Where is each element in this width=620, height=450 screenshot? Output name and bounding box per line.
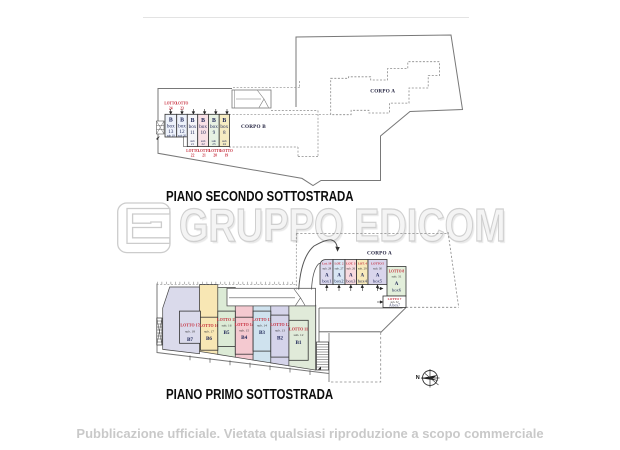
svg-text:21: 21 xyxy=(191,142,195,146)
svg-text:sub. 26: sub. 26 xyxy=(346,267,355,271)
svg-text:20: 20 xyxy=(213,153,217,157)
svg-text:LOTTO 11: LOTTO 11 xyxy=(289,327,308,332)
svg-text:LOTTO 16: LOTTO 16 xyxy=(199,323,218,328)
svg-text:sub. 14: sub. 14 xyxy=(257,323,267,327)
svg-text:sub. 13: sub. 13 xyxy=(275,328,285,332)
svg-text:LOTTO 5: LOTTO 5 xyxy=(371,262,384,266)
svg-text:B2: B2 xyxy=(277,336,283,342)
svg-text:A box7: A box7 xyxy=(389,304,400,308)
svg-text:11: 11 xyxy=(190,130,195,136)
svg-text:22: 22 xyxy=(191,153,195,157)
svg-text:sub. 31: sub. 31 xyxy=(392,275,402,279)
svg-text:LOTTO 14: LOTTO 14 xyxy=(235,322,254,327)
svg-text:LOT. 2: LOT. 2 xyxy=(334,262,344,266)
svg-text:CORPO B: CORPO B xyxy=(241,124,266,130)
svg-text:24: 24 xyxy=(169,106,173,110)
svg-text:B1: B1 xyxy=(295,340,301,346)
svg-text:9: 9 xyxy=(213,130,216,136)
svg-text:sub. 12: sub. 12 xyxy=(294,333,304,337)
svg-text:B3: B3 xyxy=(259,330,265,336)
svg-text:10: 10 xyxy=(201,130,207,136)
svg-text:sub. 30: sub. 30 xyxy=(373,267,382,271)
svg-text:Lot. 19: Lot. 19 xyxy=(322,262,332,266)
svg-text:LOTTO: LOTTO xyxy=(176,102,189,106)
svg-text:23: 23 xyxy=(212,142,216,146)
svg-text:B7: B7 xyxy=(187,337,193,343)
svg-text:LOTTO 17: LOTTO 17 xyxy=(180,323,199,328)
svg-text:B5: B5 xyxy=(223,330,229,336)
svg-text:B6: B6 xyxy=(206,336,212,342)
svg-text:sub. 16: sub. 16 xyxy=(222,323,232,327)
svg-text:sub 19: sub 19 xyxy=(167,133,175,137)
svg-text:sub. 17: sub. 17 xyxy=(204,329,214,333)
svg-text:box2: box2 xyxy=(334,279,344,284)
svg-text:box6: box6 xyxy=(392,288,402,293)
svg-text:22: 22 xyxy=(202,142,206,146)
svg-text:LOT. 4: LOT. 4 xyxy=(358,262,368,266)
svg-text:LOTTO 13: LOTTO 13 xyxy=(252,317,271,322)
svg-text:21: 21 xyxy=(202,153,206,157)
svg-text:23: 23 xyxy=(180,106,184,110)
svg-text:LOTTO: LOTTO xyxy=(220,149,233,153)
svg-text:LOT. 3: LOT. 3 xyxy=(346,262,356,266)
svg-text:sub. 28: sub. 28 xyxy=(322,267,331,271)
svg-text:LOTTO 15: LOTTO 15 xyxy=(217,317,236,322)
svg-text:8: 8 xyxy=(223,130,226,136)
svg-text:box5: box5 xyxy=(373,279,383,284)
svg-text:LOTTO 8: LOTTO 8 xyxy=(389,270,405,274)
svg-text:sub. 29: sub. 29 xyxy=(358,267,367,271)
svg-text:19: 19 xyxy=(225,153,229,157)
svg-text:box1: box1 xyxy=(322,279,332,284)
svg-text:sub. 18: sub. 18 xyxy=(185,330,195,334)
svg-text:box4: box4 xyxy=(358,279,368,284)
svg-text:sub. 27: sub. 27 xyxy=(335,267,344,271)
svg-text:LOTTO 12: LOTTO 12 xyxy=(270,322,289,327)
svg-text:24: 24 xyxy=(223,142,227,146)
svg-text:N: N xyxy=(416,375,420,381)
svg-text:A: A xyxy=(395,282,399,287)
svg-text:CORPO A: CORPO A xyxy=(367,251,392,257)
svg-text:CORPO A: CORPO A xyxy=(370,89,395,95)
svg-text:sub. 15: sub. 15 xyxy=(239,328,249,332)
svg-text:sub 20: sub 20 xyxy=(178,133,186,137)
svg-text:box3: box3 xyxy=(346,279,356,284)
svg-text:B4: B4 xyxy=(241,335,247,341)
